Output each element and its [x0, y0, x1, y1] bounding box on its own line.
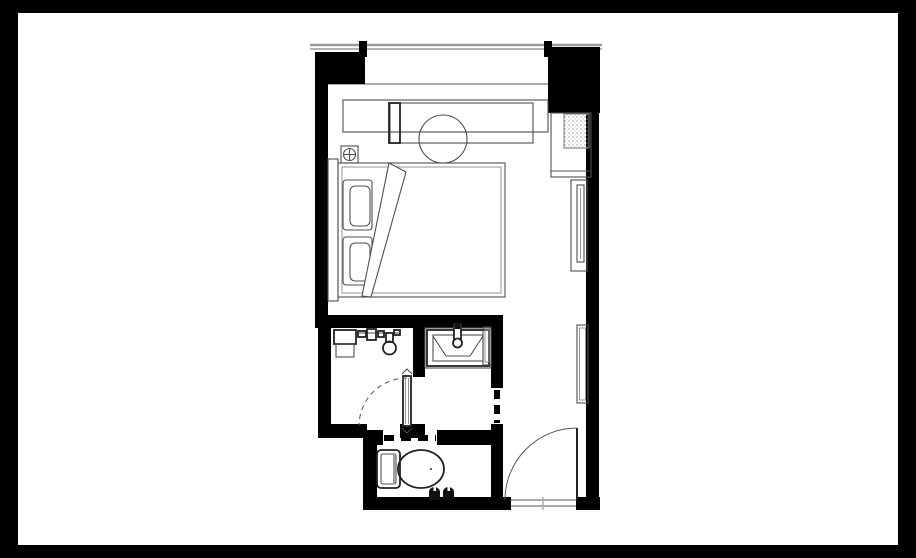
wall-toilet-top-left [363, 430, 383, 445]
desk-end-panel [389, 103, 400, 143]
wall-left [315, 52, 328, 328]
toilet [377, 450, 444, 488]
walls [315, 47, 600, 510]
glass-door-swing-arc [359, 378, 407, 426]
wall-shower-left [318, 328, 331, 437]
glass-shower-door [359, 369, 412, 433]
entry-door-swing-arc [505, 428, 577, 500]
headboard [328, 159, 338, 301]
pillow [343, 180, 372, 230]
minibar-cabinet [551, 113, 591, 177]
floor-plan-page: Black-and-white architectural floor plan… [0, 0, 916, 558]
faucet [453, 324, 462, 348]
shower-room [334, 329, 412, 433]
shower-bench [334, 330, 356, 357]
console-shelf [343, 100, 548, 132]
wall-bathroom-right-upper [491, 315, 503, 388]
entry-door [505, 428, 577, 510]
floor-outlet-symbol [341, 146, 358, 163]
bedroom [328, 100, 591, 301]
tv-panel [571, 180, 587, 271]
hand-shower [383, 330, 400, 355]
wall-bathroom-top [315, 315, 503, 328]
wall-shower-bottom [318, 424, 367, 438]
wall-shower-pier [413, 328, 425, 377]
stool [419, 115, 467, 163]
entry-corridor [505, 325, 588, 510]
vanity-vestibule [425, 324, 491, 368]
toilet-room [377, 450, 454, 500]
wall-entry-corner [576, 497, 600, 510]
floor-plan-drawing: Hotel guest room floor plan [0, 0, 916, 558]
